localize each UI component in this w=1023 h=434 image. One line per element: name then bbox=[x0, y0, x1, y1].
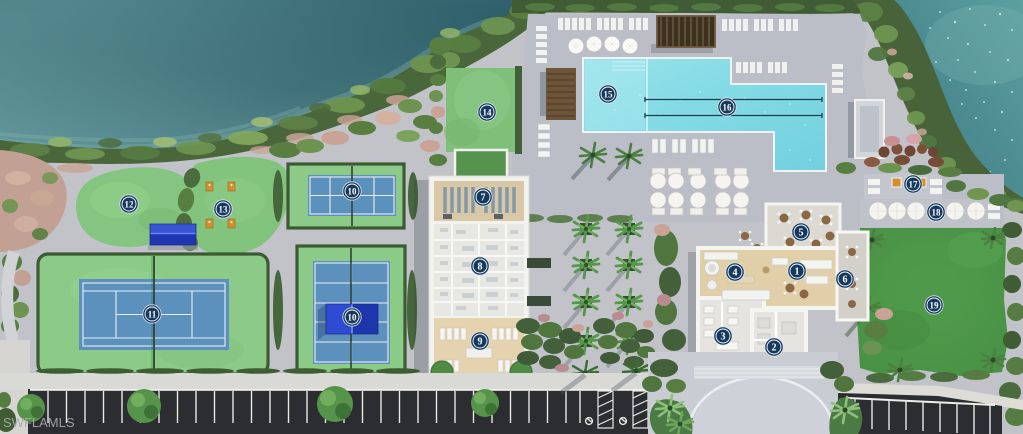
svg-text:14: 14 bbox=[483, 107, 493, 117]
svg-text:SWFLAMLS: SWFLAMLS bbox=[3, 415, 75, 430]
svg-text:8: 8 bbox=[478, 261, 483, 272]
svg-text:16: 16 bbox=[723, 102, 733, 112]
svg-text:18: 18 bbox=[932, 207, 942, 217]
svg-text:7: 7 bbox=[481, 192, 486, 203]
svg-text:19: 19 bbox=[930, 300, 940, 310]
svg-text:11: 11 bbox=[148, 309, 157, 319]
svg-text:9: 9 bbox=[478, 336, 483, 347]
svg-text:2: 2 bbox=[772, 342, 777, 353]
svg-text:13: 13 bbox=[219, 204, 229, 214]
svg-text:10: 10 bbox=[348, 186, 358, 196]
svg-text:4: 4 bbox=[733, 267, 738, 278]
svg-text:10: 10 bbox=[348, 312, 358, 322]
svg-text:15: 15 bbox=[604, 89, 614, 99]
svg-text:1: 1 bbox=[795, 266, 800, 277]
svg-text:3: 3 bbox=[721, 331, 726, 342]
svg-text:6: 6 bbox=[843, 274, 848, 285]
svg-text:17: 17 bbox=[909, 179, 919, 189]
svg-text:12: 12 bbox=[125, 199, 135, 209]
svg-text:5: 5 bbox=[799, 227, 804, 238]
